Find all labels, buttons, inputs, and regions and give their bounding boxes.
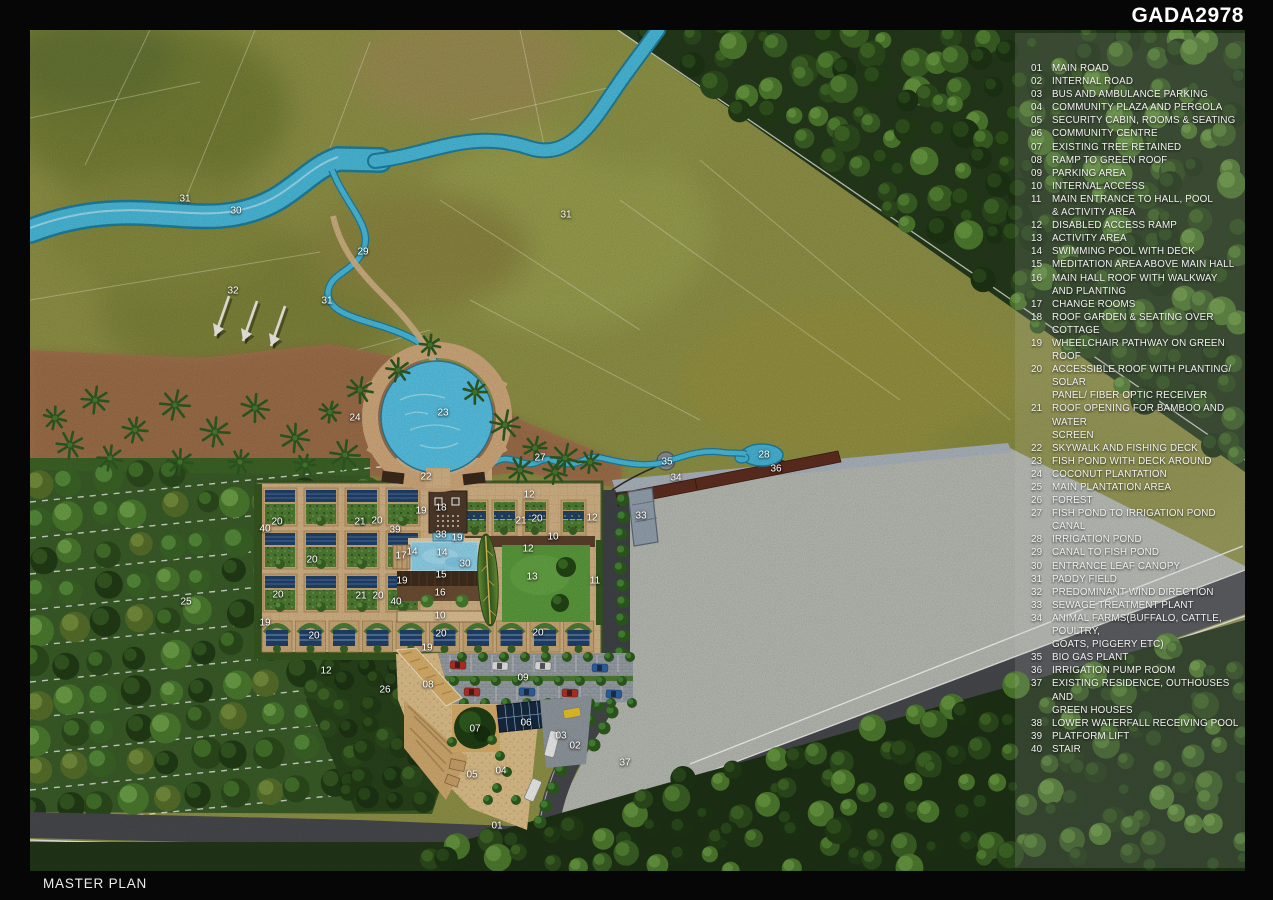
legend-panel: 01MAIN ROAD02INTERNAL ROAD03BUS AND AMBU… [1015, 33, 1245, 868]
plan-key-number: 20 [531, 514, 542, 525]
legend-item-label: DISABLED ACCESS RAMP [1046, 219, 1177, 232]
legend-item: 01MAIN ROAD [1031, 62, 1245, 75]
legend-item-label: CHANGE ROOMS [1046, 298, 1135, 311]
plan-key-number: 28 [758, 450, 769, 461]
legend-item: 36IRRIGATION PUMP ROOM [1031, 664, 1245, 677]
legend-item: 22SKYWALK AND FISHING DECK [1031, 442, 1245, 455]
legend-item: 29CANAL TO FISH POND [1031, 546, 1245, 559]
legend-item-number: 05 [1031, 114, 1046, 127]
plan-key-number: 18 [435, 503, 446, 514]
legend-item-number: 15 [1031, 258, 1046, 271]
legend-item-label: MAIN HALL ROOF WITH WALKWAYAND PLANTING [1046, 272, 1218, 298]
master-plan-sheet: GADA2978 [0, 0, 1273, 900]
legend-item-number: 26 [1031, 494, 1046, 507]
legend-item-number: 28 [1031, 533, 1046, 546]
legend-item-label: COMMUNITY CENTRE [1046, 127, 1158, 140]
legend-item: 35BIO GAS PLANT [1031, 651, 1245, 664]
legend-item: 31PADDY FIELD [1031, 573, 1245, 586]
legend-item: 21ROOF OPENING FOR BAMBOO AND WATERSCREE… [1031, 402, 1245, 441]
legend-item-number: 20 [1031, 363, 1046, 402]
plan-key-number: 35 [661, 457, 672, 468]
legend-item-label: ENTRANCE LEAF CANOPY [1046, 560, 1180, 573]
plan-key-number: 19 [396, 576, 407, 587]
legend-item-number: 06 [1031, 127, 1046, 140]
legend-item: 15MEDITATION AREA ABOVE MAIN HALL [1031, 258, 1245, 271]
plan-key-number: 12 [586, 513, 597, 524]
legend-item: 10INTERNAL ACCESS [1031, 180, 1245, 193]
legend-item: 20ACCESSIBLE ROOF WITH PLANTING/ SOLARPA… [1031, 363, 1245, 402]
legend-item-number: 25 [1031, 481, 1046, 494]
legend-item: 12DISABLED ACCESS RAMP [1031, 219, 1245, 232]
legend-item-label: PADDY FIELD [1046, 573, 1117, 586]
legend-item-number: 19 [1031, 337, 1046, 363]
plan-key-number: 19 [451, 533, 462, 544]
legend-item-number: 08 [1031, 154, 1046, 167]
plan-key-number: 29 [357, 247, 368, 258]
legend-item: 04COMMUNITY PLAZA AND PERGOLA [1031, 101, 1245, 114]
legend-item-label: ACCESSIBLE ROOF WITH PLANTING/ SOLARPANE… [1046, 363, 1245, 402]
legend-item-label: SEWAGE TREATMENT PLANT [1046, 599, 1194, 612]
plan-key-number: 05 [466, 770, 477, 781]
legend-item: 37EXISTING RESIDENCE, OUTHOUSES ANDGREEN… [1031, 677, 1245, 716]
plan-key-number: 15 [435, 570, 446, 581]
legend-item-number: 13 [1031, 232, 1046, 245]
legend-item-number: 37 [1031, 677, 1046, 716]
legend-item: 28IRRIGATION POND [1031, 533, 1245, 546]
plan-key-number: 37 [619, 758, 630, 769]
legend-item-number: 03 [1031, 88, 1046, 101]
plan-key-number: 40 [390, 597, 401, 608]
legend-item-number: 30 [1031, 560, 1046, 573]
legend-item-label: ROOF GARDEN & SEATING OVER COTTAGE [1046, 311, 1245, 337]
legend-item-number: 36 [1031, 664, 1046, 677]
plan-key-number: 13 [526, 572, 537, 583]
plan-key-number: 31 [321, 296, 332, 307]
legend-item-number: 31 [1031, 573, 1046, 586]
legend-item-number: 40 [1031, 743, 1046, 756]
legend-item: 26FOREST [1031, 494, 1245, 507]
plan-key-number: 19 [421, 643, 432, 654]
legend-item-label: ROOF OPENING FOR BAMBOO AND WATERSCREEN [1046, 402, 1245, 441]
legend-item-number: 16 [1031, 272, 1046, 298]
plan-key-number: 02 [569, 741, 580, 752]
legend-item-label: INTERNAL ACCESS [1046, 180, 1145, 193]
legend-item: 23FISH POND WITH DECK AROUND [1031, 455, 1245, 468]
legend-item: 13ACTIVITY AREA [1031, 232, 1245, 245]
legend-item-number: 02 [1031, 75, 1046, 88]
legend-item-label: INTERNAL ROAD [1046, 75, 1133, 88]
legend-item-label: ANIMAL FARMS(BUFFALO, CATTLE, POULTRY,GO… [1046, 612, 1245, 651]
legend-item-label: IRRIGATION POND [1046, 533, 1142, 546]
plan-key-number: 40 [259, 524, 270, 535]
legend-item-label: EXISTING TREE RETAINED [1046, 141, 1181, 154]
legend-item-label: MAIN ENTRANCE TO HALL, POOL& ACTIVITY AR… [1046, 193, 1213, 219]
legend-item-label: LOWER WATERFALL RECEIVING POOL [1046, 717, 1239, 730]
legend-item-number: 07 [1031, 141, 1046, 154]
legend-item: 34ANIMAL FARMS(BUFFALO, CATTLE, POULTRY,… [1031, 612, 1245, 651]
plan-key-number: 34 [670, 473, 681, 484]
plan-key-number: 10 [434, 611, 445, 622]
plan-key-number: 03 [555, 731, 566, 742]
legend-item-number: 29 [1031, 546, 1046, 559]
legend-item-number: 04 [1031, 101, 1046, 114]
plan-key-number: 16 [434, 588, 445, 599]
legend-item-label: PARKING AREA [1046, 167, 1126, 180]
legend-item: 40STAIR [1031, 743, 1245, 756]
plan-key-number: 14 [436, 548, 447, 559]
legend-item-label: STAIR [1046, 743, 1081, 756]
legend-item-number: 09 [1031, 167, 1046, 180]
legend-item-label: PREDOMINANT WIND DIRECTION [1046, 586, 1214, 599]
site-plan-map: 01MAIN ROAD02INTERNAL ROAD03BUS AND AMBU… [30, 30, 1245, 871]
legend-item-label: ACTIVITY AREA [1046, 232, 1127, 245]
drawing-code-title: GADA2978 [1131, 4, 1244, 28]
plan-key-number: 20 [308, 631, 319, 642]
plan-key-number: 17 [395, 551, 406, 562]
legend-item-label: MEDITATION AREA ABOVE MAIN HALL [1046, 258, 1234, 271]
legend-item-number: 10 [1031, 180, 1046, 193]
legend-item-number: 33 [1031, 599, 1046, 612]
plan-key-number: 21 [354, 517, 365, 528]
legend-item-label: FOREST [1046, 494, 1093, 507]
legend-item-number: 01 [1031, 62, 1046, 75]
legend-item-number: 27 [1031, 507, 1046, 533]
legend-item-number: 12 [1031, 219, 1046, 232]
legend-item: 16MAIN HALL ROOF WITH WALKWAYAND PLANTIN… [1031, 272, 1245, 298]
plan-key-number: 30 [230, 206, 241, 217]
legend-item: 32PREDOMINANT WIND DIRECTION [1031, 586, 1245, 599]
legend-item-label: FISH POND TO IRRIGATION POND CANAL [1046, 507, 1245, 533]
legend-item-number: 32 [1031, 586, 1046, 599]
plan-key-number: 22 [420, 472, 431, 483]
plan-key-number: 31 [179, 194, 190, 205]
plan-key-number: 21 [355, 591, 366, 602]
plan-key-number: 04 [495, 766, 506, 777]
legend-item-number: 11 [1031, 193, 1046, 219]
plan-key-number: 30 [459, 559, 470, 570]
legend-item: 11MAIN ENTRANCE TO HALL, POOL& ACTIVITY … [1031, 193, 1245, 219]
plan-key-number: 20 [372, 591, 383, 602]
plan-key-number: 33 [635, 511, 646, 522]
legend-item-number: 17 [1031, 298, 1046, 311]
legend-list: 01MAIN ROAD02INTERNAL ROAD03BUS AND AMBU… [1031, 62, 1245, 756]
legend-item: 05SECURITY CABIN, ROOMS & SEATING [1031, 114, 1245, 127]
legend-item-number: 34 [1031, 612, 1046, 651]
plan-key-number: 24 [349, 413, 360, 424]
legend-item-number: 22 [1031, 442, 1046, 455]
legend-item-number: 23 [1031, 455, 1046, 468]
plan-key-number: 20 [306, 555, 317, 566]
plan-key-number: 07 [469, 724, 480, 735]
plan-key-number: 27 [534, 453, 545, 464]
legend-item: 17CHANGE ROOMS [1031, 298, 1245, 311]
plan-key-number: 20 [435, 629, 446, 640]
legend-item-number: 14 [1031, 245, 1046, 258]
legend-item: 38LOWER WATERFALL RECEIVING POOL [1031, 717, 1245, 730]
plan-key-number: 14 [406, 547, 417, 558]
plan-key-number: 09 [517, 673, 528, 684]
legend-item: 08RAMP TO GREEN ROOF [1031, 154, 1245, 167]
legend-item: 06COMMUNITY CENTRE [1031, 127, 1245, 140]
legend-item-number: 18 [1031, 311, 1046, 337]
legend-item-label: SWIMMING POOL WITH DECK [1046, 245, 1195, 258]
legend-item: 18ROOF GARDEN & SEATING OVER COTTAGE [1031, 311, 1245, 337]
legend-item-number: 35 [1031, 651, 1046, 664]
legend-item-label: BUS AND AMBULANCE PARKING [1046, 88, 1208, 101]
plan-key-number: 01 [491, 821, 502, 832]
plan-key-number: 19 [415, 506, 426, 517]
plan-key-number: 21 [515, 516, 526, 527]
legend-item-number: 38 [1031, 717, 1046, 730]
legend-item-label: MAIN ROAD [1046, 62, 1109, 75]
legend-item-label: BIO GAS PLANT [1046, 651, 1129, 664]
legend-item: 19WHEELCHAIR PATHWAY ON GREEN ROOF [1031, 337, 1245, 363]
legend-item-label: SKYWALK AND FISHING DECK [1046, 442, 1198, 455]
legend-item: 25MAIN PLANTATION AREA [1031, 481, 1245, 494]
plan-key-number: 19 [259, 618, 270, 629]
legend-item-number: 24 [1031, 468, 1046, 481]
legend-item-number: 39 [1031, 730, 1046, 743]
legend-item-label: COMMUNITY PLAZA AND PERGOLA [1046, 101, 1222, 114]
plan-key-number: 12 [523, 490, 534, 501]
plan-key-number: 39 [389, 525, 400, 536]
legend-item-label: WHEELCHAIR PATHWAY ON GREEN ROOF [1046, 337, 1245, 363]
plan-key-number: 08 [422, 680, 433, 691]
legend-item-label: MAIN PLANTATION AREA [1046, 481, 1171, 494]
legend-item: 33SEWAGE TREATMENT PLANT [1031, 599, 1245, 612]
plan-key-number: 20 [272, 590, 283, 601]
plan-key-number: 20 [532, 628, 543, 639]
legend-item: 02INTERNAL ROAD [1031, 75, 1245, 88]
plan-key-number: 11 [590, 576, 600, 587]
sheet-title-master-plan: MASTER PLAN [43, 876, 147, 891]
plan-key-number: 06 [520, 718, 531, 729]
legend-item-label: CANAL TO FISH POND [1046, 546, 1159, 559]
plan-key-number: 20 [371, 516, 382, 527]
legend-item: 39PLATFORM LIFT [1031, 730, 1245, 743]
plan-key-number: 12 [320, 666, 331, 677]
legend-item-number: 21 [1031, 402, 1046, 441]
legend-item: 14SWIMMING POOL WITH DECK [1031, 245, 1245, 258]
plan-key-number: 26 [379, 685, 390, 696]
plan-key-number: 25 [180, 597, 191, 608]
plan-key-number: 32 [227, 286, 238, 297]
plan-key-number: 23 [437, 408, 448, 419]
legend-item-label: EXISTING RESIDENCE, OUTHOUSES ANDGREEN H… [1046, 677, 1245, 716]
legend-item-label: PLATFORM LIFT [1046, 730, 1129, 743]
legend-item: 03BUS AND AMBULANCE PARKING [1031, 88, 1245, 101]
legend-item: 27FISH POND TO IRRIGATION POND CANAL [1031, 507, 1245, 533]
legend-item-label: IRRIGATION PUMP ROOM [1046, 664, 1175, 677]
legend-item: 24COCONUT PLANTATION [1031, 468, 1245, 481]
plan-key-number: 38 [435, 530, 446, 541]
legend-item: 09PARKING AREA [1031, 167, 1245, 180]
plan-key-number: 12 [522, 544, 533, 555]
plan-key-number: 10 [547, 532, 558, 543]
legend-item-label: FISH POND WITH DECK AROUND [1046, 455, 1212, 468]
legend-item-label: RAMP TO GREEN ROOF [1046, 154, 1167, 167]
legend-item-label: SECURITY CABIN, ROOMS & SEATING [1046, 114, 1235, 127]
plan-key-number: 20 [271, 517, 282, 528]
plan-key-number: 36 [770, 464, 781, 475]
legend-item: 07EXISTING TREE RETAINED [1031, 141, 1245, 154]
plan-key-number: 31 [560, 210, 571, 221]
legend-item: 30ENTRANCE LEAF CANOPY [1031, 560, 1245, 573]
legend-item-label: COCONUT PLANTATION [1046, 468, 1167, 481]
